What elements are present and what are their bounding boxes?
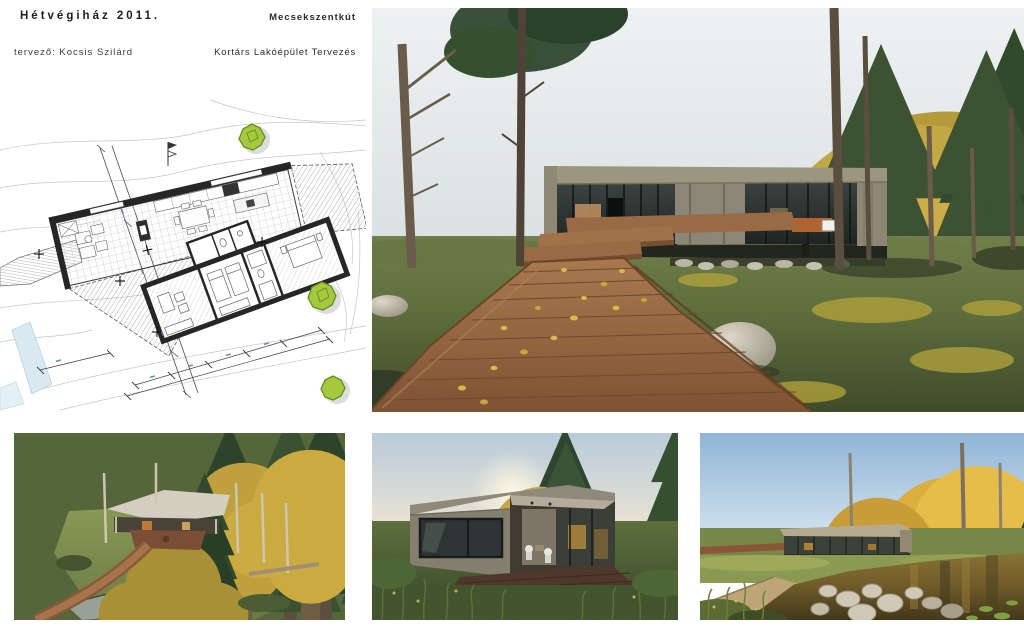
designer-credit: tervező: Kocsis Szilárd [14,47,133,58]
course-label: Kortárs Lakóépület Tervezés [160,47,356,58]
plan-level-symbol [168,142,177,166]
location-label: Mecsekszentkút [200,12,356,23]
plan-dimension-lines [37,327,333,400]
pond-render-figure [700,433,1024,620]
terrace-render-figure [372,433,678,620]
aerial-render-figure [14,433,345,620]
plan-stream [0,322,52,410]
plan-building [49,148,366,375]
presentation-board: Hétvégiház 2011. tervező: Kocsis Szilárd… [0,0,1024,635]
project-title: Hétvégiház 2011. [20,10,160,22]
floor-plan-figure [0,92,366,422]
main-render-figure [372,8,1024,412]
